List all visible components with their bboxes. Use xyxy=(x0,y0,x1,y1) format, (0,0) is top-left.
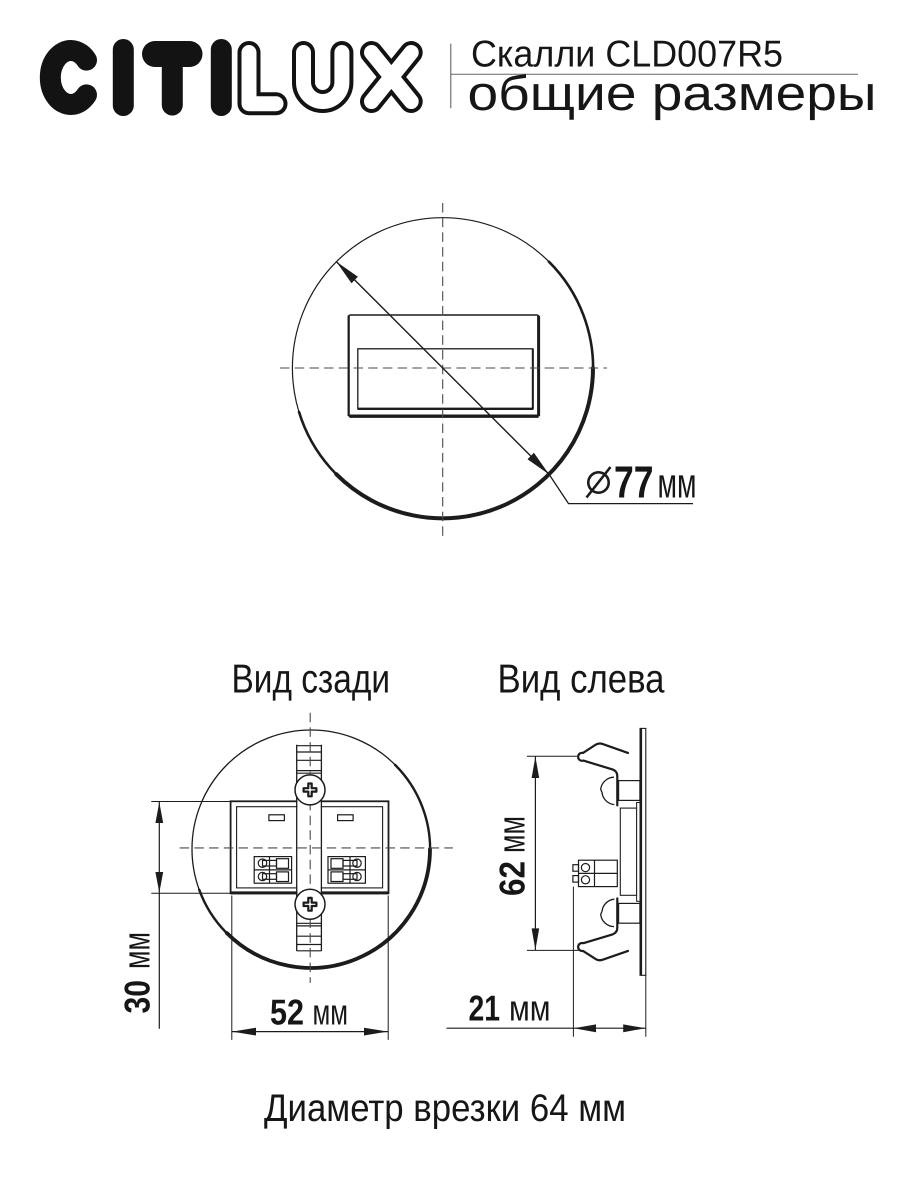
svg-text:Диаметр врезки 64 мм: Диаметр врезки 64 мм xyxy=(264,1087,626,1130)
svg-text:мм: мм xyxy=(509,988,551,1029)
svg-text:мм: мм xyxy=(492,816,534,853)
svg-text:мм: мм xyxy=(117,932,159,969)
svg-text:77: 77 xyxy=(614,457,654,508)
svg-text:30: 30 xyxy=(117,980,158,1014)
svg-text:общие размеры: общие размеры xyxy=(468,67,877,121)
svg-text:мм: мм xyxy=(658,460,697,507)
svg-text:62: 62 xyxy=(492,861,533,896)
svg-text:21: 21 xyxy=(469,988,501,1029)
svg-text:Вид слева: Вид слева xyxy=(498,656,665,702)
svg-text:Вид сзади: Вид сзади xyxy=(232,656,391,702)
svg-text:мм: мм xyxy=(313,992,349,1033)
svg-text:52: 52 xyxy=(270,992,304,1033)
